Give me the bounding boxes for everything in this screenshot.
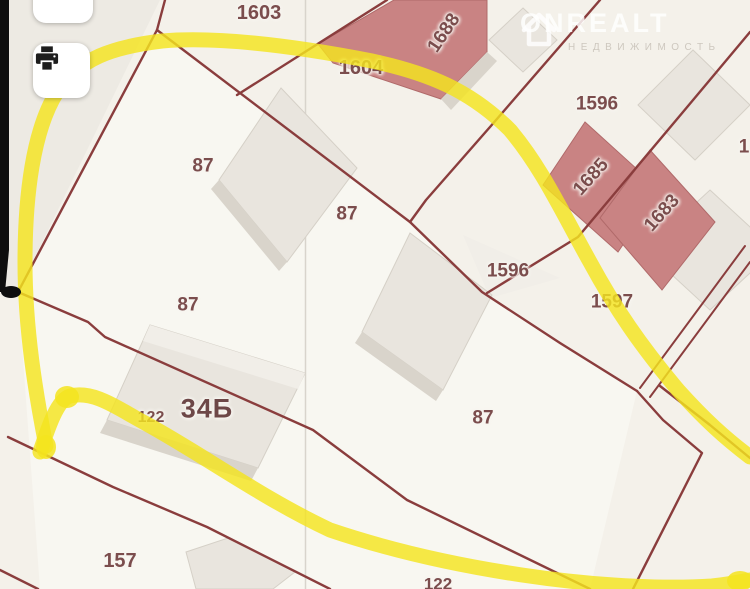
arrow-down-left-icon: [36, 0, 62, 8]
printer-icon: [33, 44, 61, 72]
map-canvas: [0, 0, 750, 589]
print-button[interactable]: [33, 43, 90, 98]
collapse-arrow-button[interactable]: [33, 0, 93, 23]
cadastral-map-view[interactable]: 1603168816041596168587168318715961597873…: [0, 0, 750, 589]
